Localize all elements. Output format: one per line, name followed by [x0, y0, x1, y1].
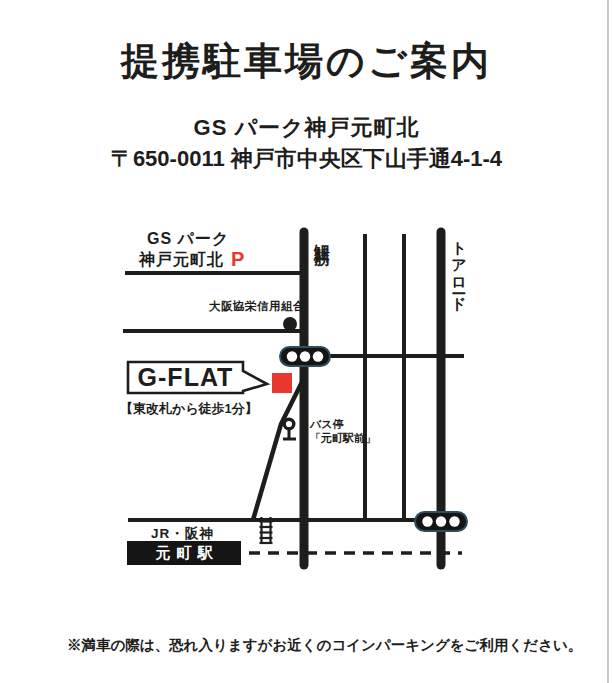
station-stairs-icon — [260, 517, 273, 543]
footer-note: ※満車の際は、恐れ入りますがお近くのコインパーキングをご利用ください。 — [67, 636, 582, 655]
road-label-koikawa-suji: 鯉川筋 — [311, 231, 332, 240]
bus-stop-label: バス停 「元町駅前」 — [310, 417, 376, 445]
road-label-toa-road: トアロード — [449, 231, 468, 304]
parking-p-icon: P — [231, 248, 245, 270]
document-page: 提携駐車場のご案内 GS パーク神戸元町北 〒650-0011 神戸市中央区下山… — [0, 0, 613, 683]
traffic-light-icon-lower — [415, 512, 467, 531]
bus-stop-icon — [283, 419, 296, 439]
bus-stop-label-line1: バス停 — [310, 417, 376, 431]
station-box: 元町駅 — [127, 541, 241, 565]
street-diagonal — [253, 380, 303, 520]
traffic-light-icon-upper — [280, 347, 330, 366]
building-note-label: 【東改札から徒歩1分】 — [120, 400, 258, 418]
building-name-label: G-FLAT — [128, 361, 243, 393]
page-edge-line — [607, 0, 609, 683]
bank-label: 大阪協栄信用組合 — [209, 299, 305, 314]
parking-location-marker — [272, 373, 292, 393]
parking-map-label: GS パーク 神戸元町北P — [139, 229, 245, 270]
parking-map-label-line1: GS パーク — [139, 229, 245, 249]
map-graphic — [0, 0, 613, 683]
bus-stop-label-line2: 「元町駅前」 — [310, 431, 376, 445]
bank-dot-icon — [283, 317, 297, 331]
parking-map-label-line2: 神戸元町北P — [139, 249, 245, 270]
